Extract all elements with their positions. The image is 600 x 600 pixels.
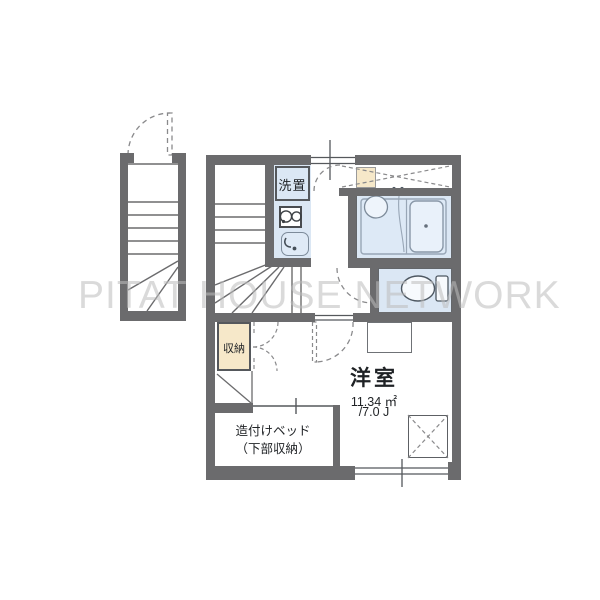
toilet-icon — [402, 276, 449, 301]
wash-basin-icon — [365, 196, 388, 218]
wall — [206, 466, 355, 480]
linework-layer — [0, 0, 600, 600]
wall — [353, 313, 378, 322]
external-staircase — [128, 164, 178, 311]
entrance-opening — [311, 140, 355, 180]
bed-edge — [253, 398, 333, 414]
toilet-door-icon — [337, 268, 372, 303]
closet-doors-icon — [253, 322, 278, 371]
wall — [178, 155, 186, 321]
room-door-icon — [313, 322, 317, 362]
equipment-x-icon — [408, 415, 448, 458]
wall — [206, 313, 315, 322]
wall — [206, 403, 253, 413]
storage-label: 収納 — [217, 340, 251, 356]
wall — [348, 194, 356, 266]
laundry-label: 洗置 — [275, 175, 310, 194]
unit-bath — [361, 187, 446, 254]
wall — [265, 163, 274, 261]
bathtub-drain-icon — [424, 224, 428, 228]
entrance-door-icon — [314, 165, 340, 191]
under-stair-area — [217, 371, 252, 403]
upper-closet-x-icon — [342, 166, 450, 187]
bed-label-line1: 造付けベッド — [213, 420, 333, 439]
room-name-label: 洋室 — [338, 362, 410, 392]
window-icon — [355, 459, 448, 487]
wall — [370, 312, 452, 322]
wall — [452, 155, 461, 480]
kitchen-faucet-icon — [285, 238, 297, 250]
room-area-jo-label: /7.0 J — [338, 405, 410, 419]
bed-label-line2: （下部収納） — [213, 438, 333, 457]
stove-icon — [280, 211, 301, 223]
wall — [206, 155, 311, 165]
wall — [355, 155, 461, 165]
wall — [348, 258, 452, 268]
external-door-icon — [128, 113, 172, 155]
wall — [120, 155, 128, 321]
wall — [120, 311, 186, 321]
wall — [370, 268, 378, 313]
wall — [448, 462, 461, 480]
wall — [265, 258, 311, 267]
floor-plan: 洗置 収納 洋室 11.34 ㎡ /7.0 J 造付けベッド （下部収納） PI… — [0, 0, 600, 600]
room-doorway — [313, 316, 354, 363]
